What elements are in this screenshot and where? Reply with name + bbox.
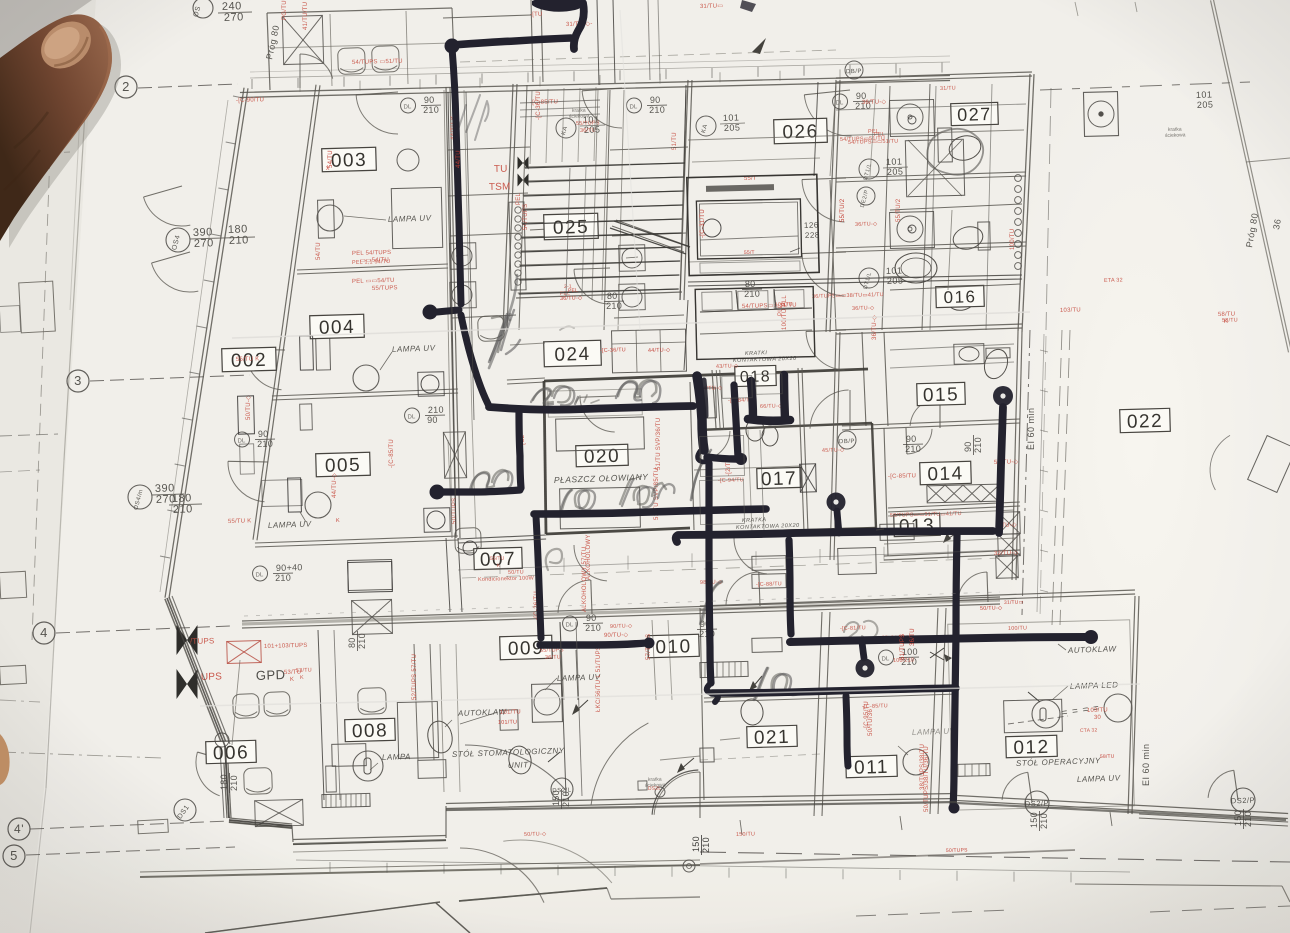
- svg-text:44/TU-◇: 44/TU-◇: [648, 347, 671, 354]
- svg-text:31/TU▭: 31/TU▭: [1004, 599, 1024, 606]
- svg-text:210: 210: [701, 837, 711, 853]
- svg-text:54/TU: 54/TU: [328, 150, 334, 168]
- svg-text:55/TU/2: 55/TU/2: [840, 198, 846, 222]
- svg-text:K: K: [336, 518, 340, 524]
- svg-text:150: 150: [691, 836, 701, 852]
- svg-text:50/TU-◇: 50/TU-◇: [980, 605, 1003, 612]
- svg-text:44/TU: 44/TU: [456, 150, 462, 168]
- svg-text:51/TUPS: 51/TUPS: [900, 634, 906, 660]
- svg-text:101/TU: 101/TU: [498, 719, 517, 726]
- svg-text:55/T: 55/T: [744, 250, 755, 256]
- svg-text:-[C-36/TU: -[C-36/TU: [600, 347, 626, 354]
- svg-text:36/TU: 36/TU: [910, 628, 916, 646]
- svg-text:PEL: PEL: [568, 288, 578, 294]
- svg-text:-[C-31/TU: -[C-31/TU: [700, 209, 706, 238]
- svg-text:58/TU: 58/TU: [1100, 754, 1115, 760]
- svg-text:50/TUPS: 50/TUPS: [946, 847, 968, 854]
- svg-text:36/TU-◇: 36/TU-◇: [560, 295, 583, 302]
